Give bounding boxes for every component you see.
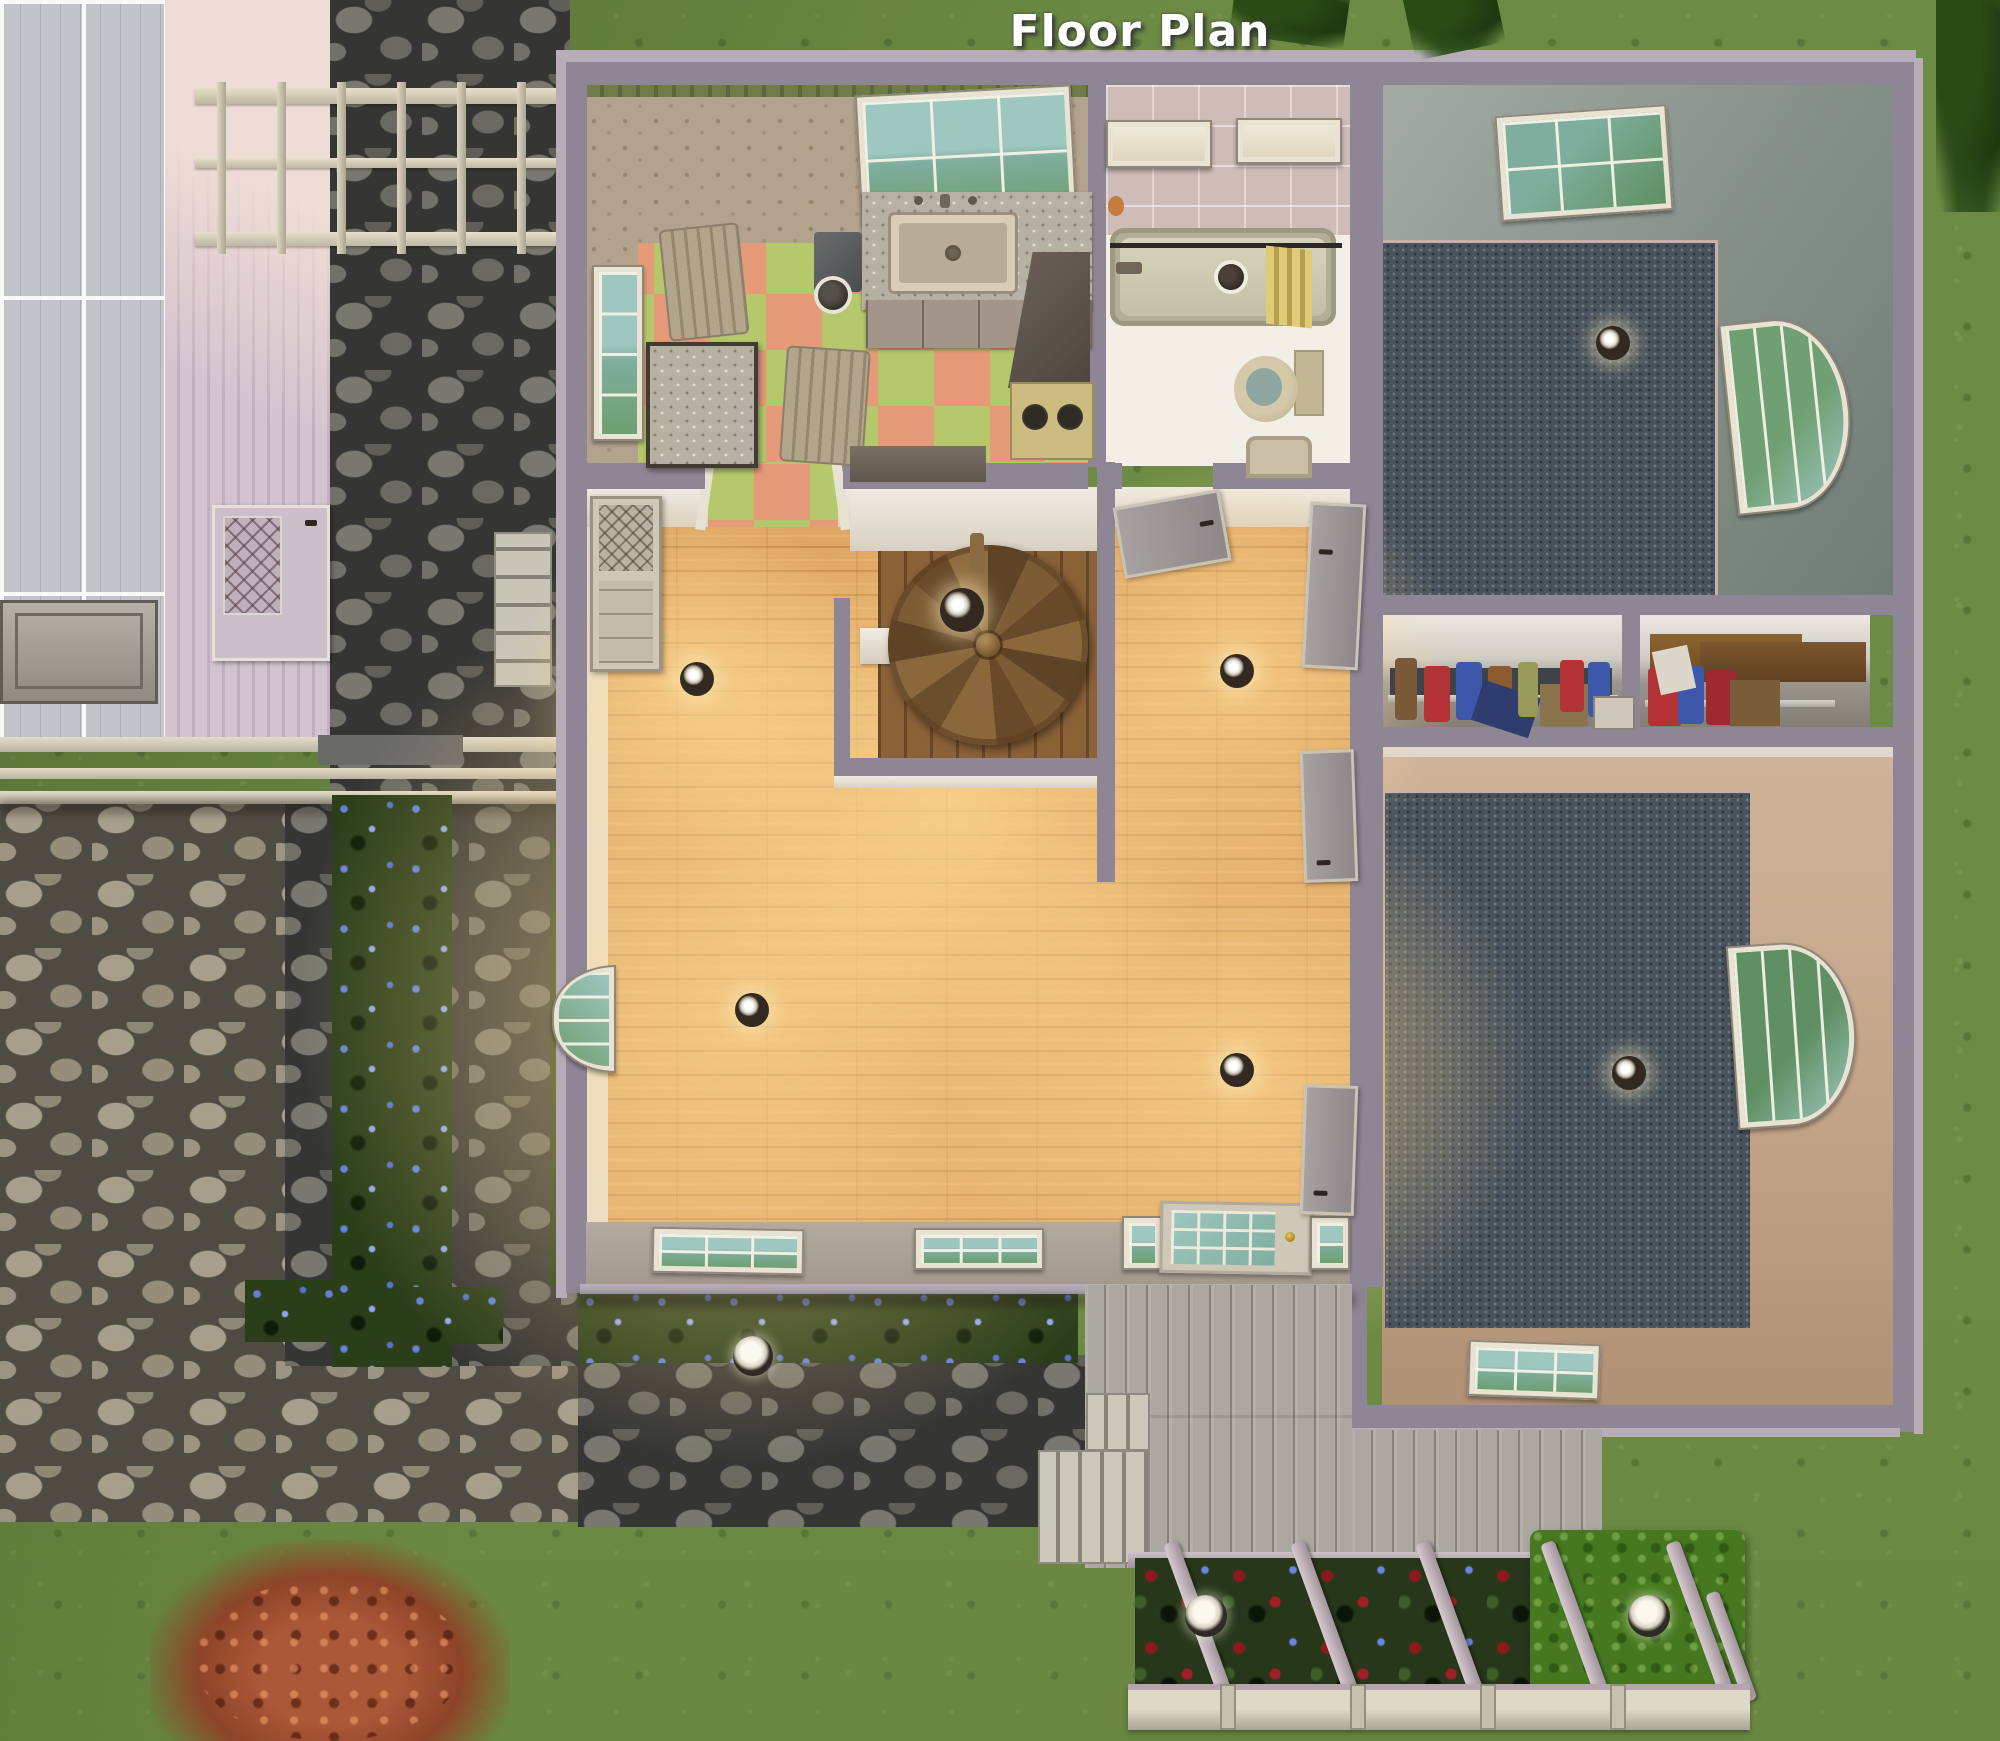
- hall-door-east[interactable]: [1300, 749, 1359, 883]
- outdoor-light[interactable]: [1628, 1595, 1670, 1637]
- ac-unit[interactable]: [0, 600, 158, 704]
- living-window-south[interactable]: [914, 1228, 1044, 1270]
- door-handle: [1199, 520, 1214, 527]
- fence-shadow-beam: [318, 735, 463, 765]
- ceiling-light[interactable]: [680, 662, 714, 696]
- storage-box[interactable]: [1730, 680, 1780, 726]
- door-handle: [1313, 1190, 1327, 1195]
- ceiling-light[interactable]: [1596, 326, 1630, 360]
- closet-south-wall: [1383, 727, 1893, 747]
- window-glass: [1129, 1223, 1155, 1263]
- west-wall: [566, 62, 587, 1293]
- trash-can-pedal: [818, 280, 848, 310]
- staircase-newel-post: [970, 533, 984, 573]
- bathroom-window[interactable]: [1236, 118, 1342, 164]
- neighbor-door-handle: [305, 520, 317, 526]
- front-door[interactable]: [1159, 1201, 1312, 1276]
- flower-bed-patch: [408, 1287, 503, 1344]
- picture-frame[interactable]: [1593, 696, 1635, 730]
- window-glass: [1474, 1347, 1593, 1393]
- deck-steps-upper[interactable]: [1086, 1393, 1150, 1451]
- pergola: [195, 88, 580, 258]
- ceiling-light[interactable]: [940, 588, 984, 632]
- bedroom1-south-wall: [1383, 595, 1893, 615]
- toilet-water: [1246, 368, 1282, 406]
- staircase-center-pole: [976, 633, 1000, 657]
- door-handle: [1317, 860, 1331, 865]
- garden-rail: [1128, 1684, 1750, 1730]
- bedroom1-carpet: [1383, 240, 1718, 597]
- hanging-clothes[interactable]: [1424, 666, 1450, 722]
- window-glass: [1243, 125, 1335, 157]
- door-handle: [1319, 549, 1333, 555]
- bedroom2-south-wall: [1352, 1405, 1895, 1430]
- front-door-knob: [1285, 1232, 1295, 1242]
- sink-drain: [945, 245, 961, 261]
- tree-leaves: [1936, 0, 2000, 212]
- pergola-rafter: [217, 82, 226, 254]
- wardrobe[interactable]: [590, 496, 662, 672]
- kitchen-doorway-floor: [708, 463, 838, 527]
- pergola-rafter: [397, 82, 406, 254]
- stone-path-bottom: [578, 1355, 1090, 1527]
- spiral-staircase[interactable]: [888, 545, 1088, 745]
- kitchen-console[interactable]: [850, 446, 986, 482]
- wardrobe-panels: [599, 581, 653, 663]
- ceiling-light[interactable]: [1220, 654, 1254, 688]
- bedroom2-carpet: [1385, 790, 1750, 1328]
- rail-post: [1220, 1684, 1236, 1730]
- concrete-steps[interactable]: [494, 532, 552, 687]
- outdoor-light[interactable]: [733, 1336, 773, 1376]
- window-glass: [599, 272, 637, 434]
- front-door-sidelight[interactable]: [1310, 1216, 1350, 1270]
- hall-door-east[interactable]: [1302, 502, 1367, 671]
- fence-rail: [0, 768, 580, 779]
- kitchen-sink[interactable]: [888, 212, 1018, 294]
- bathtub-faucet: [1116, 262, 1142, 274]
- pergola-rafter: [277, 82, 286, 254]
- hanging-clothes[interactable]: [1395, 658, 1417, 720]
- outdoor-light[interactable]: [1185, 1595, 1227, 1637]
- kitchen-window-west[interactable]: [592, 265, 644, 441]
- rail-post: [1350, 1684, 1366, 1730]
- red-bush-texture: [195, 1580, 465, 1741]
- stair-hall-wall: [1097, 462, 1115, 882]
- flower-bed-vertical: [332, 795, 452, 1367]
- window-glass: [1317, 1223, 1343, 1263]
- stove-burner: [1022, 404, 1048, 430]
- window-glass: [1113, 127, 1205, 161]
- bathroom-window[interactable]: [1106, 120, 1212, 168]
- front-door-sidelight[interactable]: [1122, 1216, 1162, 1270]
- page-title: Floor Plan: [960, 6, 1320, 57]
- dining-chair[interactable]: [658, 222, 749, 342]
- hall-door-east[interactable]: [1300, 1084, 1359, 1216]
- ceiling-light[interactable]: [735, 993, 769, 1027]
- faucet-knob: [914, 196, 923, 205]
- north-wall: [566, 62, 1915, 85]
- faucet-knob: [968, 196, 977, 205]
- stairwell-wall-bottom: [834, 758, 1115, 776]
- dining-table[interactable]: [646, 342, 758, 468]
- living-window-south[interactable]: [652, 1227, 805, 1276]
- toilet-tank: [1294, 350, 1324, 416]
- fence-rail: [0, 737, 580, 752]
- pergola-rafter: [337, 82, 346, 254]
- shower-curtain[interactable]: [1266, 246, 1312, 329]
- window-glass: [921, 1235, 1037, 1263]
- shower-rod: [1110, 243, 1342, 248]
- front-door-glass: [1171, 1210, 1276, 1266]
- window-glass: [659, 1234, 798, 1268]
- stairwell-wall-face-south: [834, 776, 1115, 788]
- stove-burner: [1057, 404, 1083, 430]
- hanging-clothes[interactable]: [1560, 660, 1584, 712]
- toilet[interactable]: [1234, 356, 1298, 422]
- east-wall-rim: [1914, 58, 1923, 1434]
- bedroom1-window-north[interactable]: [1495, 104, 1674, 222]
- stove[interactable]: [1010, 382, 1094, 460]
- east-wall: [1893, 62, 1915, 1432]
- rail-post: [1480, 1684, 1496, 1730]
- floor-plan-scene: Floor Plan: [0, 0, 2000, 1741]
- ceiling-light[interactable]: [1220, 1053, 1254, 1087]
- rail-post: [1610, 1684, 1626, 1730]
- pergola-rafter: [457, 82, 466, 254]
- loofah: [1108, 196, 1124, 216]
- hanging-clothes[interactable]: [1518, 662, 1538, 717]
- stairwell-wall-left: [834, 598, 850, 778]
- pergola-rafter: [517, 82, 526, 254]
- ac-unit-panel: [15, 613, 143, 689]
- window-glass: [1502, 112, 1666, 215]
- ceiling-light[interactable]: [1612, 1056, 1646, 1090]
- bedroom2-window-south[interactable]: [1467, 1340, 1601, 1401]
- deck-steps[interactable]: [1038, 1450, 1150, 1564]
- neighbor-door-lattice: [223, 516, 282, 615]
- bathroom-sink[interactable]: [1246, 436, 1312, 478]
- bathtub-drain: [1218, 264, 1244, 290]
- bedroom2-ceiling-strip: [1382, 747, 1893, 757]
- neighbor-door[interactable]: [212, 505, 330, 661]
- flower-bed-patch: [245, 1280, 333, 1342]
- window-glass: [559, 972, 609, 1066]
- fence-shadow: [0, 800, 580, 814]
- faucet: [940, 194, 950, 208]
- wardrobe-lattice: [599, 505, 653, 571]
